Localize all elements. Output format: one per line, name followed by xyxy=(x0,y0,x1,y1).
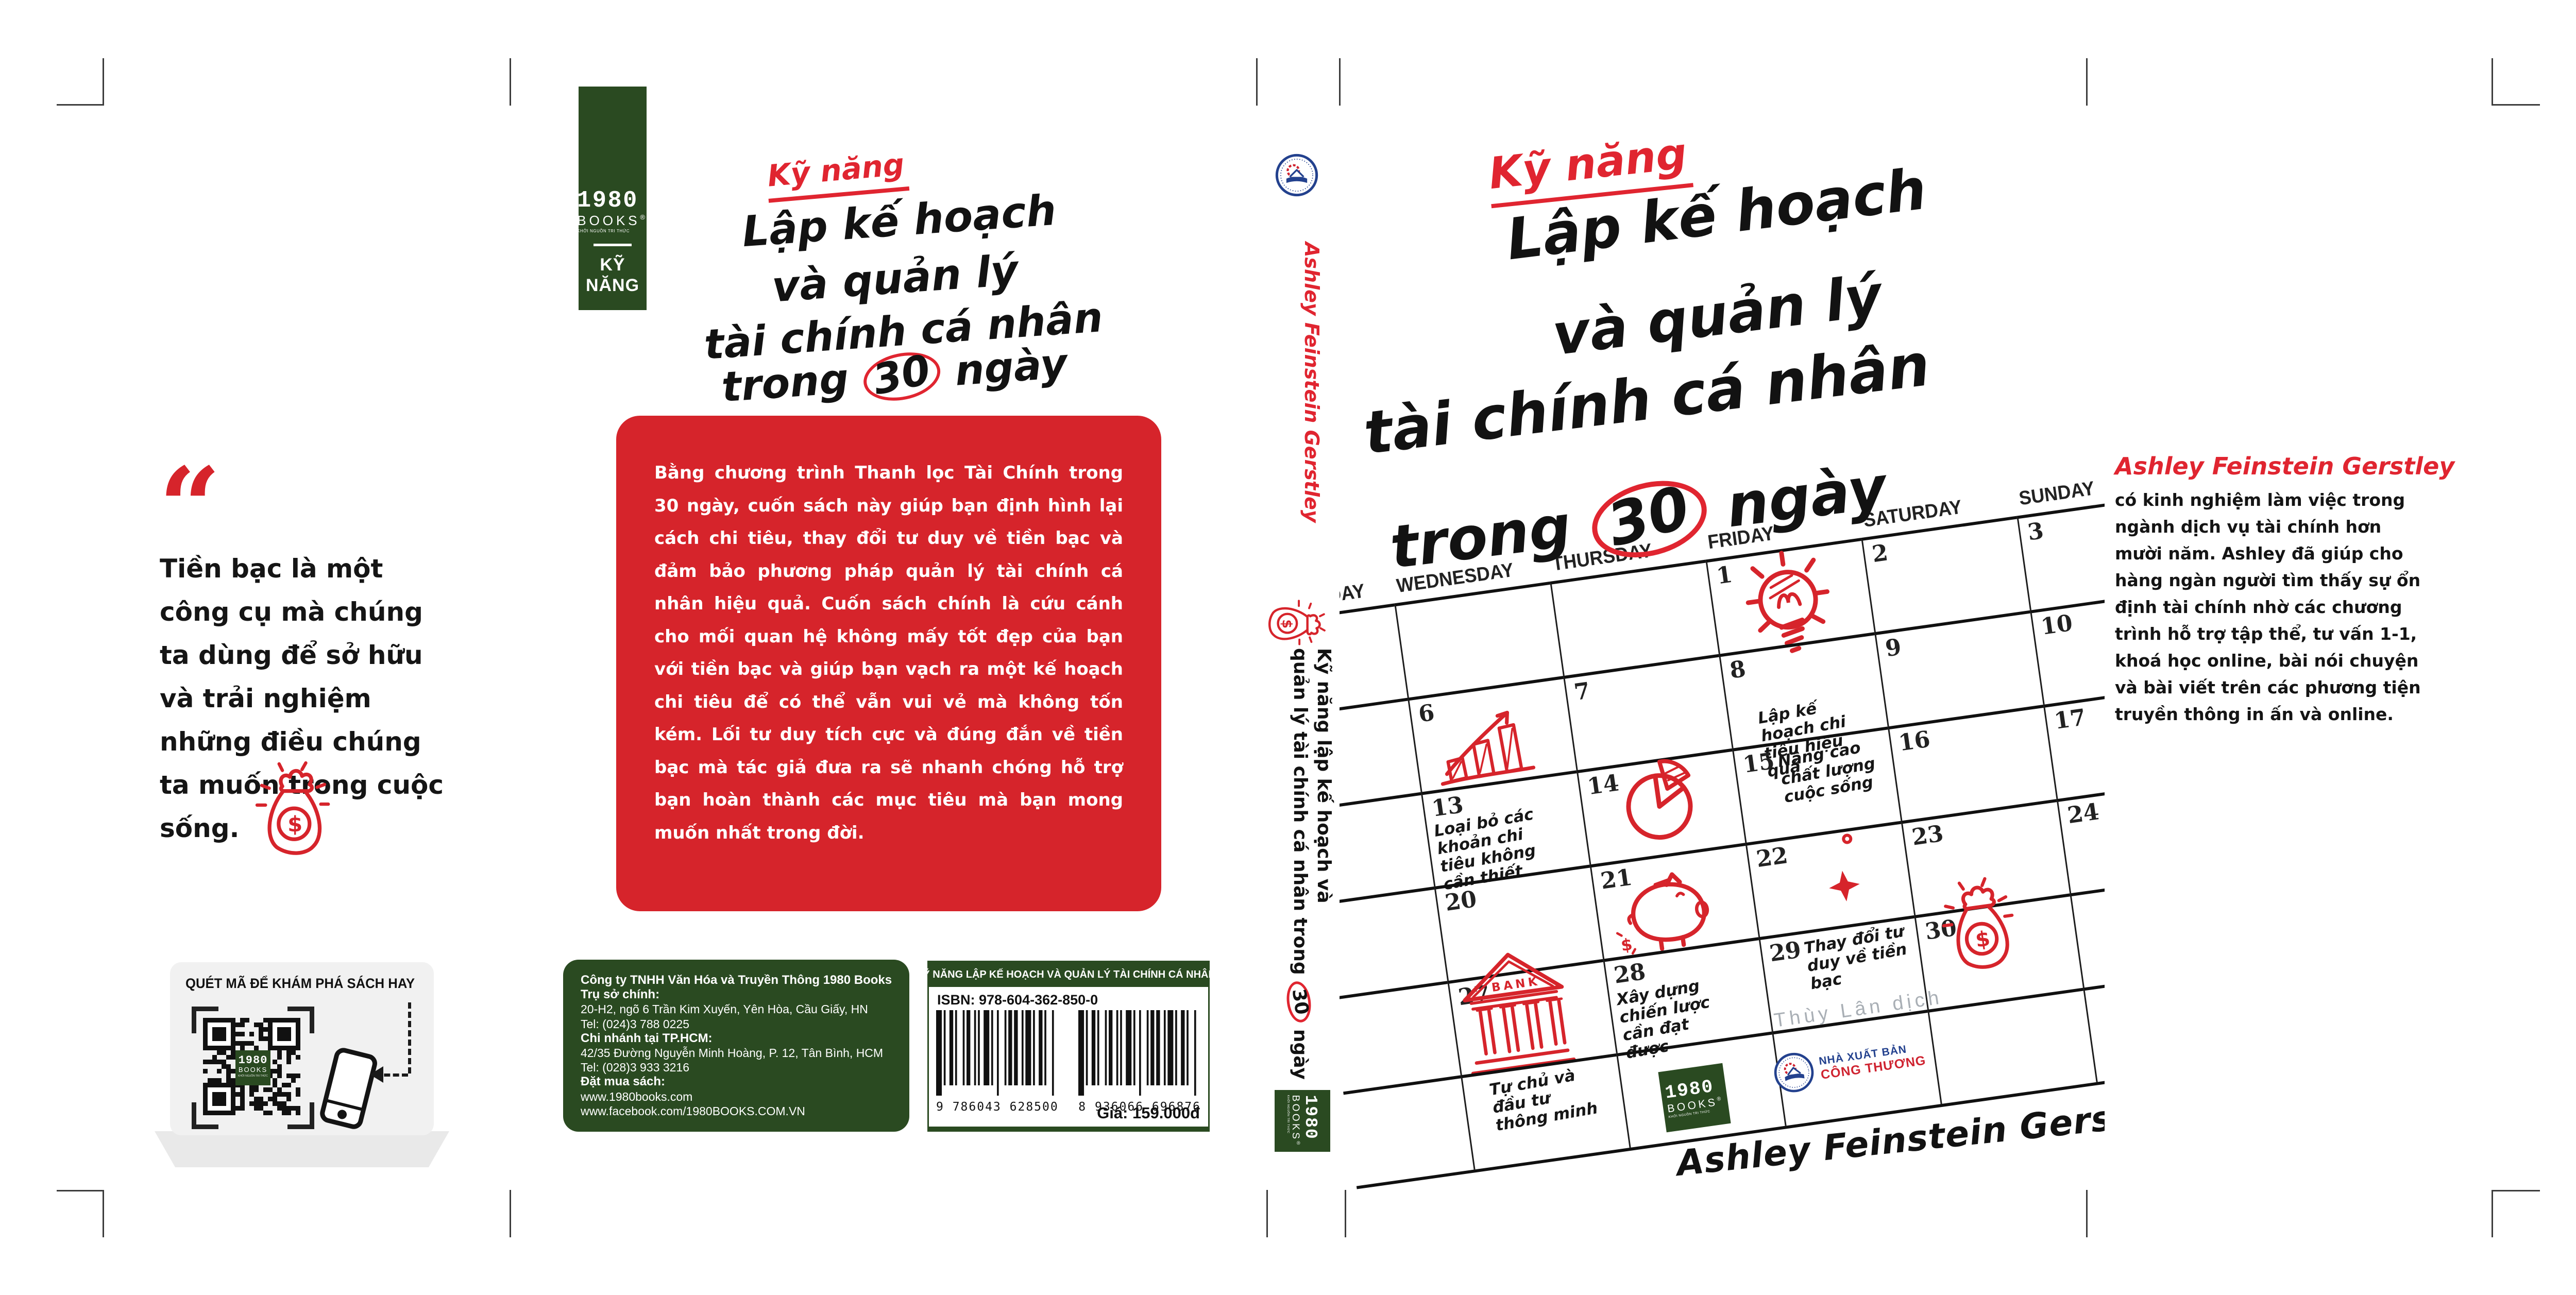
barcode-2: 8 936066 696876 xyxy=(1078,1010,1201,1114)
left-flap: “ Tiền bạc là một công cụ mà chúng ta dù… xyxy=(103,0,510,1295)
publisher-info-line: Công ty TNHH Văn Hóa và Truyền Thông 198… xyxy=(581,973,892,987)
day-number: 15 xyxy=(1741,750,1776,777)
publisher-info-line: Tel: (028)3 933 3216 xyxy=(581,1060,892,1075)
day-number: 1 xyxy=(1715,564,1734,588)
day-number: 3 xyxy=(2026,520,2045,544)
qr-card: QUÉT MÃ ĐỂ KHÁM PHÁ SÁCH HAY 1980 BOOKS … xyxy=(170,962,434,1135)
svg-text:$: $ xyxy=(1279,619,1294,628)
day-number: 21 xyxy=(1599,866,1634,893)
front-cover: TUESDAYWEDNESDAYTHURSDAYFRIDAYSATURDAYSU… xyxy=(1340,0,2105,1295)
calendar-cell xyxy=(1340,792,1434,903)
spine: Ashley Feinstein Gerstley $ Kỹ năng lập … xyxy=(1257,0,1340,1295)
svg-text:BANK: BANK xyxy=(1491,975,1541,995)
barcode-1: 9 786043 628500 xyxy=(936,1010,1059,1114)
smartphone-icon xyxy=(316,1045,381,1134)
qr-stand-base xyxy=(155,1131,449,1167)
publisher-info-line: 42/35 Đường Nguyễn Minh Hoàng, P. 12, Tâ… xyxy=(581,1046,892,1060)
calendar-cell xyxy=(1340,698,1421,809)
publisher-info-line: Đặt mua sách: xyxy=(581,1075,892,1089)
quote-mark: “ xyxy=(159,453,221,561)
day-number: 8 xyxy=(1728,658,1747,683)
svg-text:$: $ xyxy=(1974,926,1992,952)
spine-author: Ashley Feinstein Gerstley xyxy=(1300,242,1323,572)
spine-title: Kỹ năng lập kế hoạch và quản lý tài chín… xyxy=(1287,648,1335,1045)
qr-card-title: QUÉT MÃ ĐỂ KHÁM PHÁ SÁCH HAY xyxy=(185,976,406,992)
day-number: 23 xyxy=(1910,823,1945,849)
cover-spread-sheet: “ Tiền bạc là một công cụ mà chúng ta dù… xyxy=(0,0,2576,1295)
publisher-info-line: www.facebook.com/1980BOOKS.COM.VN xyxy=(581,1104,892,1118)
calendar-cell xyxy=(1340,887,1447,997)
day-number: 24 xyxy=(2066,800,2100,827)
day-number: 7 xyxy=(1573,679,1591,704)
publisher-info-line: www.1980books.com xyxy=(581,1089,892,1104)
day-number: 10 xyxy=(2040,612,2074,639)
cong-thuong-emblem-icon xyxy=(1771,1050,1817,1095)
day-number: 20 xyxy=(1444,888,1478,915)
handwritten-note: Thay đổi tư duy về tiền bạc xyxy=(1803,922,1916,993)
right-flap: Ashley Feinstein Gerstley có kinh nghiệm… xyxy=(2105,0,2514,1295)
dashed-connector xyxy=(408,1002,411,1074)
quote-text: Tiền bạc là một công cụ mà chúng ta dùng… xyxy=(160,547,459,850)
sparkle-icon xyxy=(1812,828,1877,912)
handwritten-note: Tự chủ và đầu tư thông minh xyxy=(1488,1063,1606,1135)
day-number: 2 xyxy=(1871,541,1889,566)
isbn-label: ISBN: 978-604-362-850-0 xyxy=(937,992,1208,1008)
barcode-card: KỸ NĂNG LẬP KẾ HOẠCH VÀ QUẢN LÝ TÀI CHÍN… xyxy=(927,961,1210,1132)
publisher-info-box: Công ty TNHH Văn Hóa và Truyền Thông 198… xyxy=(563,960,909,1132)
circled-30: 30 xyxy=(1284,980,1313,1024)
category-label: KỸ xyxy=(586,254,639,275)
qr-center-logo: 1980 BOOKS KHỞI NGUỒN TRI THỨC xyxy=(235,1050,270,1085)
day-number: 28 xyxy=(1613,961,1647,987)
1980-books-logo: 1980 BOOKS® KHỞI NGUỒN TRI THỨC xyxy=(577,189,648,233)
price-label: Giá: 159.000đ xyxy=(1097,1104,1200,1122)
back-title-kicker: Kỹ năng xyxy=(765,146,910,203)
svg-text:$: $ xyxy=(1620,935,1634,956)
day-number: 29 xyxy=(1768,939,1803,965)
crop-mark xyxy=(57,104,104,106)
crop-mark xyxy=(57,1190,104,1191)
day-number: 14 xyxy=(1586,772,1620,798)
divider xyxy=(594,244,632,246)
day-number: 6 xyxy=(1417,702,1436,726)
day-number: 9 xyxy=(1884,636,1903,660)
day-number: 27 xyxy=(1457,982,1492,1009)
publisher-info-line: Trụ sở chính: xyxy=(581,987,892,1002)
day-number: 16 xyxy=(1897,728,1931,755)
front-1980-logo: 1980 BOOKS® KHỞI NGUỒN TRI THỨC xyxy=(1658,1063,1731,1132)
day-number: 17 xyxy=(2053,706,2088,733)
author-bio-text: có kinh nghiệm làm việc trong ngành dịch… xyxy=(2115,487,2430,728)
arrow-icon xyxy=(362,1066,383,1083)
day-number: 30 xyxy=(1924,917,1958,944)
day-number: 22 xyxy=(1755,844,1789,871)
calendar-cell xyxy=(1343,1075,1474,1186)
barcode-card-title: KỸ NĂNG LẬP KẾ HOẠCH VÀ QUẢN LÝ TÀI CHÍN… xyxy=(929,962,1208,987)
cong-thuong-emblem-icon xyxy=(1275,154,1318,197)
circled-30: 30 xyxy=(859,346,945,407)
qr-scan-frame: 1980 BOOKS KHỞI NGUỒN TRI THỨC xyxy=(192,1007,314,1129)
handwritten-note: Nâng cao chất lượng cuộc sống xyxy=(1776,735,1890,807)
category-label: NĂNG xyxy=(586,275,639,296)
spine-1980-logo: 1980 BOOKS® KHỞI NGUỒN TRI THỨC xyxy=(1275,1090,1330,1152)
back-cover-blurb: Bằng chương trình Thanh lọc Tài Chính tr… xyxy=(616,416,1161,911)
money-bag-icon: $ xyxy=(1265,599,1328,647)
day-number: 13 xyxy=(1430,794,1465,821)
publisher-info-line: 20-H2, ngõ 6 Trần Kim Xuyến, Yên Hòa, Cầ… xyxy=(581,1002,892,1016)
author-bio-name: Ashley Feinstein Gerstley xyxy=(2115,452,2454,480)
publisher-info-line: Chi nhánh tại TP.HCM: xyxy=(581,1031,892,1046)
publisher-info-line: Tel: (024)3 788 0225 xyxy=(581,1017,892,1031)
calendar-cell xyxy=(1340,981,1461,1092)
publisher-category-tag: 1980 BOOKS® KHỞI NGUỒN TRI THỨC KỸNĂNG xyxy=(579,87,647,310)
